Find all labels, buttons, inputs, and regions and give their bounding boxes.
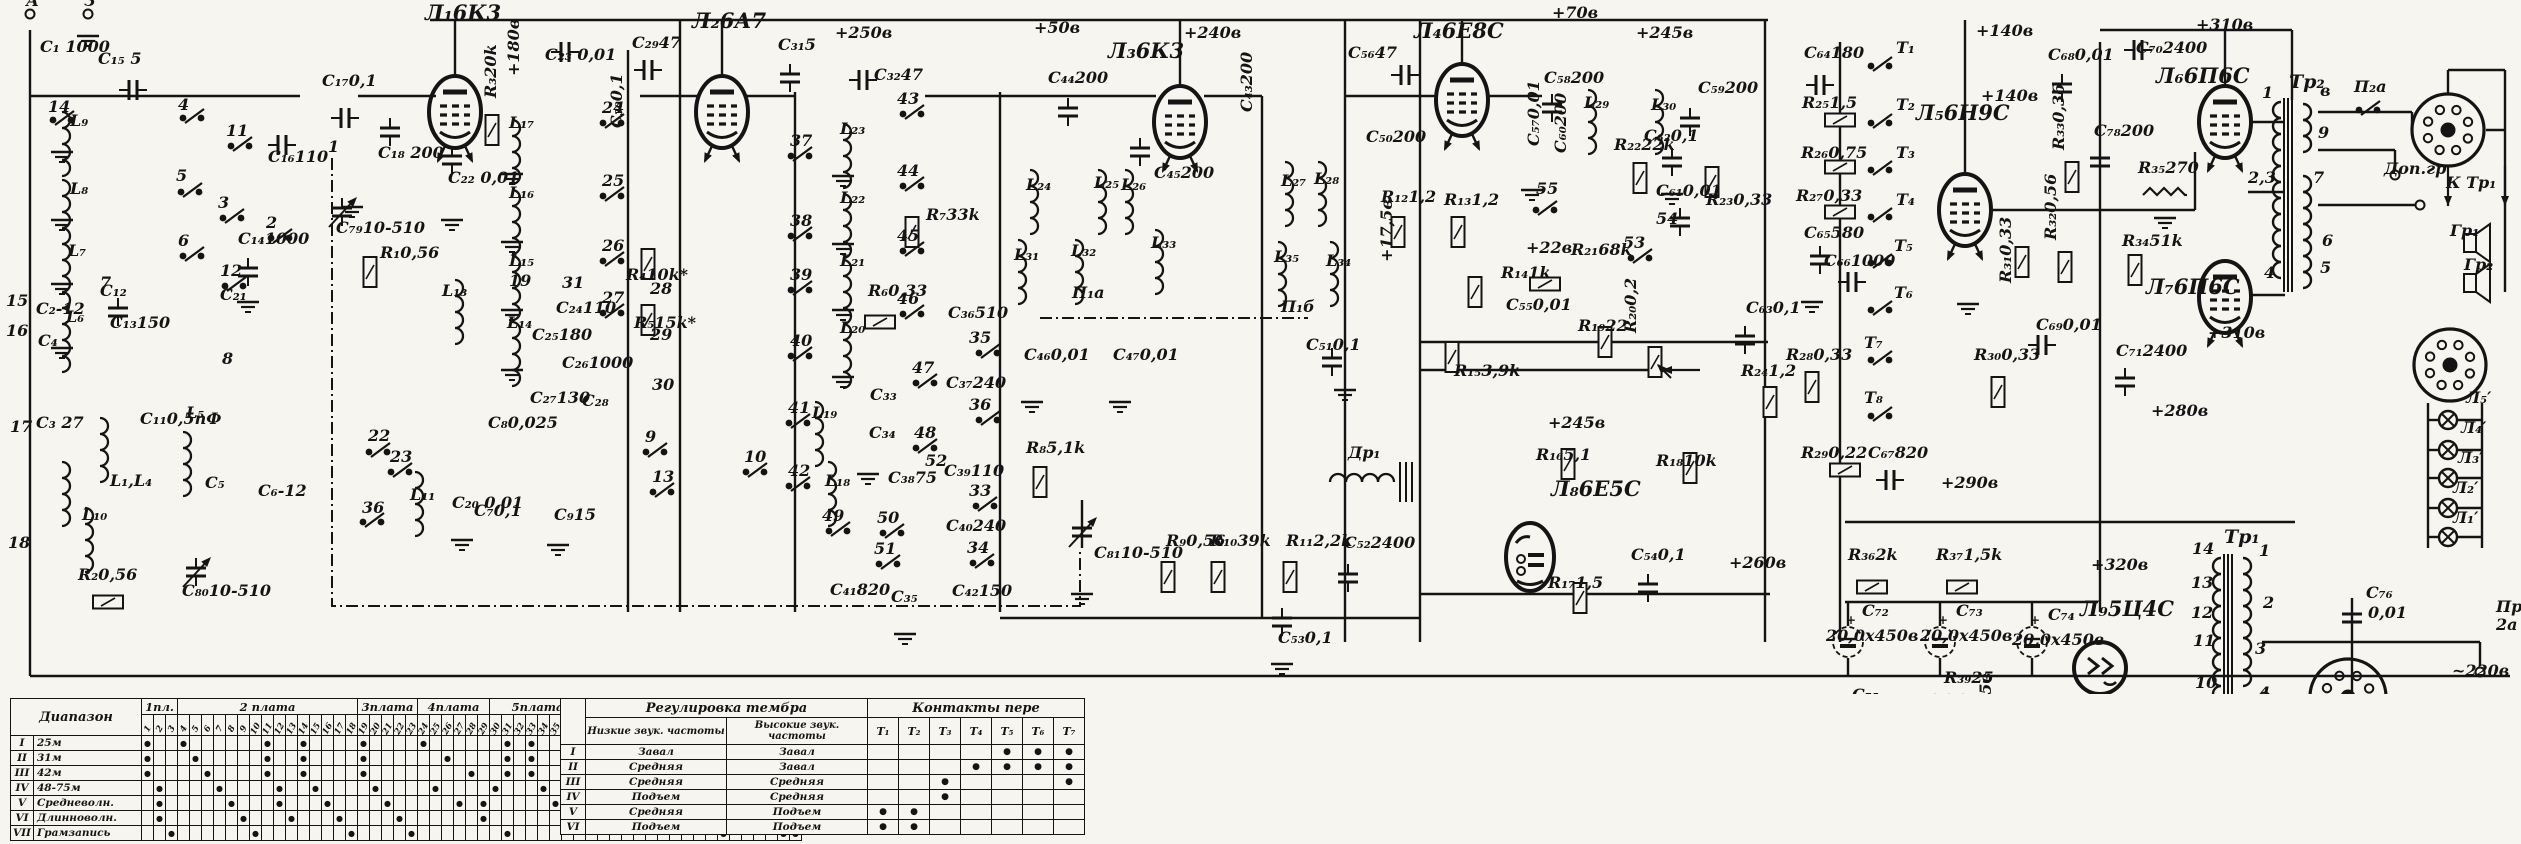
plate-contact-col: 12 (274, 715, 286, 736)
ground-symbol (1801, 302, 1823, 312)
svg-text:C₇₅: C₇₅ (1852, 685, 1879, 694)
contact-cell (899, 790, 930, 805)
svg-text:C₃₆510: C₃₆510 (948, 303, 1008, 322)
contact-cell (286, 751, 298, 766)
svg-text:П₁б: П₁б (1280, 297, 1315, 316)
svg-text:C₄₁820: C₄₁820 (830, 580, 890, 599)
contact-cell (394, 766, 406, 781)
contact-cell: ● (238, 811, 250, 826)
svg-text:L₃₅: L₃₅ (1273, 247, 1299, 266)
resistor-symbol (1634, 163, 1647, 193)
svg-text:C₆₈0,01: C₆₈0,01 (2048, 45, 2114, 64)
contact-cell (142, 781, 154, 796)
contact-cell (190, 826, 202, 841)
contact-cell (226, 826, 238, 841)
contact-cell: ● (154, 796, 166, 811)
svg-text:R₁₆5,1: R₁₆5,1 (1535, 445, 1591, 464)
svg-text:R₇33k: R₇33k (925, 205, 980, 224)
contact-cell: ● (406, 826, 418, 841)
contact-cell (526, 781, 538, 796)
contact-cell (274, 826, 286, 841)
svg-text:1: 1 (328, 137, 339, 156)
svg-text:23: 23 (389, 447, 412, 466)
contact-cell (190, 766, 202, 781)
ground-symbol (1957, 304, 1979, 314)
contact-cell (214, 811, 226, 826)
contact-cell (310, 826, 322, 841)
svg-text:C₂₄110: C₂₄110 (556, 298, 616, 317)
svg-text:C₇₈200: C₇₈200 (2094, 121, 2154, 140)
band-table-header: 2 плата (178, 699, 358, 715)
svg-text:37: 37 (790, 131, 812, 150)
svg-text:43: 43 (897, 89, 919, 108)
contact-cell (346, 736, 358, 751)
contact-cell (370, 766, 382, 781)
svg-text:C₃₅: C₃₅ (891, 587, 918, 606)
svg-text:Л₃6К3: Л₃6К3 (1107, 38, 1184, 63)
contact-cell (250, 751, 262, 766)
svg-text:C₄: C₄ (38, 331, 58, 350)
svg-text:C₁₄1000: C₁₄1000 (238, 229, 309, 248)
contact-cell (370, 826, 382, 841)
contact-cell: ● (1054, 745, 1085, 760)
contact-cell (454, 826, 466, 841)
svg-text:C₇₃: C₇₃ (1956, 601, 1983, 620)
contact-cell (490, 811, 502, 826)
high-freq-header: Высокие звук. частоты (727, 718, 868, 745)
contact-cell (334, 781, 346, 796)
svg-text:R₁₀39k: R₁₀39k (1209, 531, 1271, 550)
contact-cell (238, 736, 250, 751)
svg-text:10: 10 (2195, 673, 2217, 692)
plate-contact-col: 23 (406, 715, 418, 736)
contact-cell (478, 736, 490, 751)
svg-text:+280в: +280в (2151, 401, 2208, 420)
contact-cell: ● (478, 796, 490, 811)
svg-text:20,0х450в: 20,0х450в (1825, 626, 1918, 645)
svg-text:C₄₅200: C₄₅200 (1154, 163, 1214, 182)
svg-text:+310в: +310в (2208, 323, 2265, 342)
resistor-symbol (1825, 114, 1855, 127)
contact-cell (430, 796, 442, 811)
svg-text:в: в (2320, 81, 2331, 100)
svg-text:Л₇6П6С: Л₇6П6С (2145, 274, 2240, 299)
svg-text:C₄₂150: C₄₂150 (952, 581, 1012, 600)
contact-cell: ● (310, 781, 322, 796)
band-name: 42м (34, 766, 142, 781)
svg-text:Доп.гр: Доп.гр (2383, 159, 2446, 178)
svg-text:+: + (1938, 613, 1948, 627)
resistor-symbol (2066, 162, 2079, 192)
svg-text:C₅₂2400: C₅₂2400 (1344, 533, 1415, 552)
contact-cell: ● (1054, 775, 1085, 790)
contact-cell (154, 766, 166, 781)
tone-table-header (561, 699, 586, 745)
contact-cell (466, 736, 478, 751)
contact-cell (490, 751, 502, 766)
contact-cell: ● (394, 811, 406, 826)
tube-symbol (2199, 86, 2251, 173)
contact-cell: ● (418, 736, 430, 751)
contact-cell: ● (992, 760, 1023, 775)
svg-text:З: З (84, 0, 96, 10)
svg-text:2а: 2а (2495, 615, 2518, 634)
contact-cell (274, 811, 286, 826)
svg-text:45: 45 (897, 226, 919, 245)
contact-col: Т₄ (961, 718, 992, 745)
capacitor-symbol (380, 118, 400, 146)
tone-control-table: Регулировка тембраКонтакты переНизкие зв… (560, 698, 1085, 835)
band-table-header: VII (11, 826, 34, 841)
svg-text:+290в: +290в (1941, 473, 1998, 492)
contact-cell (430, 766, 442, 781)
contact-cell (538, 751, 550, 766)
contact-cell (526, 811, 538, 826)
svg-text:R₁₈10k: R₁₈10k (1655, 451, 1717, 470)
contact-cell (310, 736, 322, 751)
contact-cell (478, 766, 490, 781)
plate-contact-col: 34 (538, 715, 550, 736)
svg-text:L₃₄: L₃₄ (1325, 251, 1351, 270)
plate-contact-col: 4 (178, 715, 190, 736)
resistor-symbol (1825, 161, 1855, 174)
contact-cell: ● (214, 781, 226, 796)
band-name: 25м (34, 736, 142, 751)
resistor-symbol (1212, 562, 1225, 592)
contact-cell (442, 781, 454, 796)
svg-text:L₁₁: L₁₁ (409, 485, 435, 504)
resistor-symbol (2016, 247, 2029, 277)
contact-cell (346, 751, 358, 766)
contact-cell (406, 811, 418, 826)
contact-cell (250, 781, 262, 796)
plate-contact-col: 8 (226, 715, 238, 736)
contact-cell (868, 790, 899, 805)
svg-text:R₂₅1,5: R₂₅1,5 (1801, 93, 1857, 112)
svg-text:L₁₆: L₁₆ (508, 183, 534, 202)
tone-table-header: II (561, 760, 586, 775)
contact-cell (226, 736, 238, 751)
svg-text:C₁₁0,5пФ: C₁₁0,5пФ (140, 409, 221, 428)
svg-text:C₃₇240: C₃₇240 (946, 373, 1006, 392)
plate-contact-col: 5 (190, 715, 202, 736)
schematic-svg: ++++АЗC₁ 1000C₁₅ 514411L₉5L₈32C₁₆1101C₁₈… (0, 0, 2521, 694)
contact-cell (454, 766, 466, 781)
tube-symbol (696, 76, 748, 163)
capacitor-symbol (849, 70, 877, 90)
plate-contact-col: 20 (370, 715, 382, 736)
resistor-symbol (1947, 581, 1977, 594)
tone-setting: Подъем (727, 820, 868, 835)
contact-cell: ● (961, 760, 992, 775)
contact-cell (202, 811, 214, 826)
contact-cell (310, 811, 322, 826)
svg-text:C₇₄: C₇₄ (2048, 605, 2075, 624)
svg-text:Л₈6Е5С: Л₈6Е5С (1550, 476, 1641, 501)
dial-lamp-icon (2428, 528, 2482, 546)
svg-text:L₁₈: L₁₈ (824, 471, 850, 490)
svg-text:+140в: +140в (1976, 21, 2033, 40)
contact-cell (442, 736, 454, 751)
svg-text:3: 3 (218, 193, 229, 212)
tone-setting: Завал (586, 745, 727, 760)
svg-text:R₃₇1,5k: R₃₇1,5k (1935, 545, 2002, 564)
svg-text:L₆: L₆ (65, 307, 84, 326)
contact-cell (178, 781, 190, 796)
svg-text:R₃₅270: R₃₅270 (2137, 158, 2199, 177)
ground-symbol (894, 634, 916, 644)
contact-cell (930, 805, 961, 820)
svg-text:6: 6 (178, 231, 189, 250)
svg-text:44: 44 (897, 161, 919, 180)
svg-text:Л₁6К3: Л₁6К3 (424, 0, 501, 25)
svg-text:C₂₃ 0,01: C₂₃ 0,01 (545, 45, 616, 64)
contact-col: Т₁ (868, 718, 899, 745)
contact-cell (370, 751, 382, 766)
contact-cell (322, 766, 334, 781)
capacitor-symbol (2115, 368, 2135, 396)
contact-cell (430, 811, 442, 826)
svg-text:1: 1 (2262, 83, 2273, 102)
contact-cell: ● (526, 751, 538, 766)
contact-cell (538, 796, 550, 811)
contact-cell (202, 826, 214, 841)
svg-text:49: 49 (822, 506, 844, 525)
contact-cell (166, 736, 178, 751)
contact-cell (214, 826, 226, 841)
ground-symbol (1271, 664, 1293, 674)
contact-cell: ● (1023, 745, 1054, 760)
contact-cell (899, 775, 930, 790)
svg-text:C₆₆1000: C₆₆1000 (1824, 251, 1895, 270)
plate-contact-col: 10 (250, 715, 262, 736)
plate-contact-col: 22 (394, 715, 406, 736)
capacitor-symbol (1638, 574, 1658, 602)
contact-cell (514, 796, 526, 811)
tube-symbol (2074, 642, 2126, 694)
contact-cell (310, 751, 322, 766)
svg-text:Гр₁: Гр₁ (2449, 221, 2479, 240)
contact-cell: ● (502, 736, 514, 751)
contact-cell (454, 751, 466, 766)
svg-text:R₁₄1k: R₁₄1k (1500, 263, 1551, 282)
contact-cell: ● (899, 820, 930, 835)
contact-cell: ● (478, 811, 490, 826)
resistor-symbol (1857, 581, 1887, 594)
svg-text:13: 13 (652, 467, 674, 486)
contact-cell: ● (298, 736, 310, 751)
arrow (1662, 166, 2509, 374)
svg-text:Гр₂: Гр₂ (2463, 255, 2493, 274)
svg-text:4: 4 (2264, 263, 2275, 282)
band-name: Средневолн. (34, 796, 142, 811)
band-table-header: IV (11, 781, 34, 796)
contact-cell: ● (992, 745, 1023, 760)
contact-cell (961, 820, 992, 835)
svg-text:C₇₀2400: C₇₀2400 (2136, 38, 2207, 57)
svg-text:R₃₃0,36: R₃₃0,36 (2049, 84, 2068, 151)
svg-text:R₁₃1,2: R₁₃1,2 (1443, 190, 1499, 209)
contact-cell (262, 826, 274, 841)
contact-cell: ● (358, 736, 370, 751)
contact-cell: ● (142, 766, 154, 781)
capacitor-symbol (1069, 517, 1097, 547)
svg-text:C₅₉200: C₅₉200 (1698, 78, 1758, 97)
contact-cell (490, 736, 502, 751)
contact-cell (274, 736, 286, 751)
svg-text:13: 13 (2191, 573, 2213, 592)
contact-cell: ● (502, 751, 514, 766)
contact-cell (178, 811, 190, 826)
svg-text:C₃₁5: C₃₁5 (778, 35, 816, 54)
svg-text:L₃₂: L₃₂ (1070, 241, 1096, 260)
tone-table-title: Регулировка тембра (586, 699, 868, 718)
contact-cell (214, 766, 226, 781)
contact-cell (286, 796, 298, 811)
svg-text:+50в: +50в (1034, 18, 1080, 37)
svg-text:C₇₁2400: C₇₁2400 (2116, 341, 2187, 360)
contact-cell (868, 760, 899, 775)
svg-text:C₅₇0,01: C₅₇0,01 (1524, 80, 1543, 146)
svg-text:C₆₃0,1: C₆₃0,1 (1746, 298, 1801, 317)
svg-text:22: 22 (367, 426, 390, 445)
plate-contact-col: 16 (322, 715, 334, 736)
contact-cell: ● (1023, 760, 1054, 775)
svg-text:C₅₄0,1: C₅₄0,1 (1631, 545, 1686, 564)
svg-text:54: 54 (1656, 209, 1678, 228)
contact-col: Т₆ (1023, 718, 1054, 745)
plate-contact-col: 33 (526, 715, 538, 736)
plate-contact-col: 32 (514, 715, 526, 736)
svg-text:C₄₃200: C₄₃200 (1237, 52, 1256, 112)
contact-cell (478, 826, 490, 841)
band-name: 48-75м (34, 781, 142, 796)
band-name: Длинноволн. (34, 811, 142, 826)
contact-cell: ● (358, 766, 370, 781)
svg-text:L₃₀: L₃₀ (1650, 95, 1676, 114)
svg-text:51: 51 (874, 539, 896, 558)
contact-cell (899, 760, 930, 775)
ground-symbol (2154, 218, 2176, 228)
capacitor-symbol (1058, 98, 1078, 126)
svg-text:41: 41 (788, 398, 810, 417)
capacitor-symbol (1130, 138, 1150, 166)
svg-text:C₄₄200: C₄₄200 (1048, 68, 1108, 87)
contact-cell (1023, 775, 1054, 790)
ground-symbol (441, 220, 463, 230)
contact-cell (202, 781, 214, 796)
resistor-symbol (1452, 217, 1465, 247)
contact-cell (322, 736, 334, 751)
svg-text:Тр₁: Тр₁ (2224, 526, 2260, 548)
svg-text:C₇₂: C₇₂ (1862, 601, 1889, 620)
contact-cell (1023, 820, 1054, 835)
svg-text:L₂₂: L₂₂ (839, 188, 865, 207)
plate-contact-col: 7 (214, 715, 226, 736)
contact-cell (478, 781, 490, 796)
contact-cell (466, 796, 478, 811)
svg-text:36: 36 (969, 395, 991, 414)
svg-text:R₂0,56: R₂0,56 (77, 565, 137, 584)
tone-table-header: I (561, 745, 586, 760)
svg-text:Т₄: Т₄ (1896, 190, 1915, 209)
svg-text:11: 11 (2193, 631, 2215, 650)
contact-cell (382, 751, 394, 766)
svg-text:C₂₆1000: C₂₆1000 (562, 353, 633, 372)
contact-cell (514, 826, 526, 841)
component-label: АЗC₁ 1000C₁₅ 514411L₉5L₈32C₁₆1101C₁₈ 200… (6, 0, 2521, 694)
contact-cell: ● (202, 766, 214, 781)
svg-text:Л₃′: Л₃′ (2457, 448, 2484, 467)
contact-cell (238, 781, 250, 796)
svg-text:+310в: +310в (2196, 15, 2253, 34)
contact-cell: ● (250, 826, 262, 841)
contact-cell (370, 736, 382, 751)
svg-text:C₅: C₅ (205, 473, 225, 492)
svg-text:C₂₈: C₂₈ (582, 391, 609, 410)
contact-cell (298, 796, 310, 811)
contact-cell (490, 766, 502, 781)
contact-cell (502, 796, 514, 811)
svg-text:C₅₈200: C₅₈200 (1544, 68, 1604, 87)
contact-cell (382, 781, 394, 796)
ground-symbol (1021, 402, 1043, 412)
svg-text:50: 50 (877, 508, 899, 527)
contact-cell (961, 790, 992, 805)
contact-cell (142, 796, 154, 811)
svg-text:+17,5в: +17,5в (1377, 199, 1396, 262)
svg-text:L₂₈: L₂₈ (1313, 169, 1339, 188)
svg-text:9: 9 (2318, 123, 2329, 142)
contact-cell (538, 826, 550, 841)
contact-cell (358, 811, 370, 826)
svg-text:C₁₆110: C₁₆110 (268, 147, 328, 166)
plate-contact-col: 26 (442, 715, 454, 736)
contact-cell (430, 736, 442, 751)
contact-cell (334, 766, 346, 781)
tone-setting: Средняя (586, 775, 727, 790)
svg-text:4: 4 (2259, 683, 2270, 694)
contact-cell (406, 766, 418, 781)
contact-cell (202, 736, 214, 751)
contact-cell: ● (1054, 760, 1085, 775)
tube-symbol (1939, 174, 1991, 261)
svg-text:Л₉5Ц4С: Л₉5Ц4С (2079, 596, 2174, 621)
plate-contact-col: 11 (262, 715, 274, 736)
svg-text:C₇₉10-510: C₇₉10-510 (336, 218, 425, 237)
contact-cell (322, 811, 334, 826)
contact-cell (214, 751, 226, 766)
contact-cell: ● (346, 826, 358, 841)
contact-cell: ● (154, 811, 166, 826)
svg-text:Л₆6П6С: Л₆6П6С (2155, 63, 2250, 88)
svg-text:39: 39 (790, 265, 812, 284)
svg-text:9: 9 (645, 427, 656, 446)
transformer-symbol (2213, 554, 2251, 694)
svg-text:Т₁: Т₁ (1896, 38, 1915, 57)
contact-cell (454, 811, 466, 826)
contact-cell (514, 751, 526, 766)
contact-cell: ● (899, 805, 930, 820)
contact-cell (142, 811, 154, 826)
contact-cell (418, 766, 430, 781)
contact-cell (514, 811, 526, 826)
svg-text:C₁₂: C₁₂ (100, 281, 127, 300)
resistor-symbol (1825, 206, 1855, 219)
contact-cell (430, 751, 442, 766)
svg-text:L₃₁: L₃₁ (1013, 245, 1039, 264)
contact-cell (394, 781, 406, 796)
